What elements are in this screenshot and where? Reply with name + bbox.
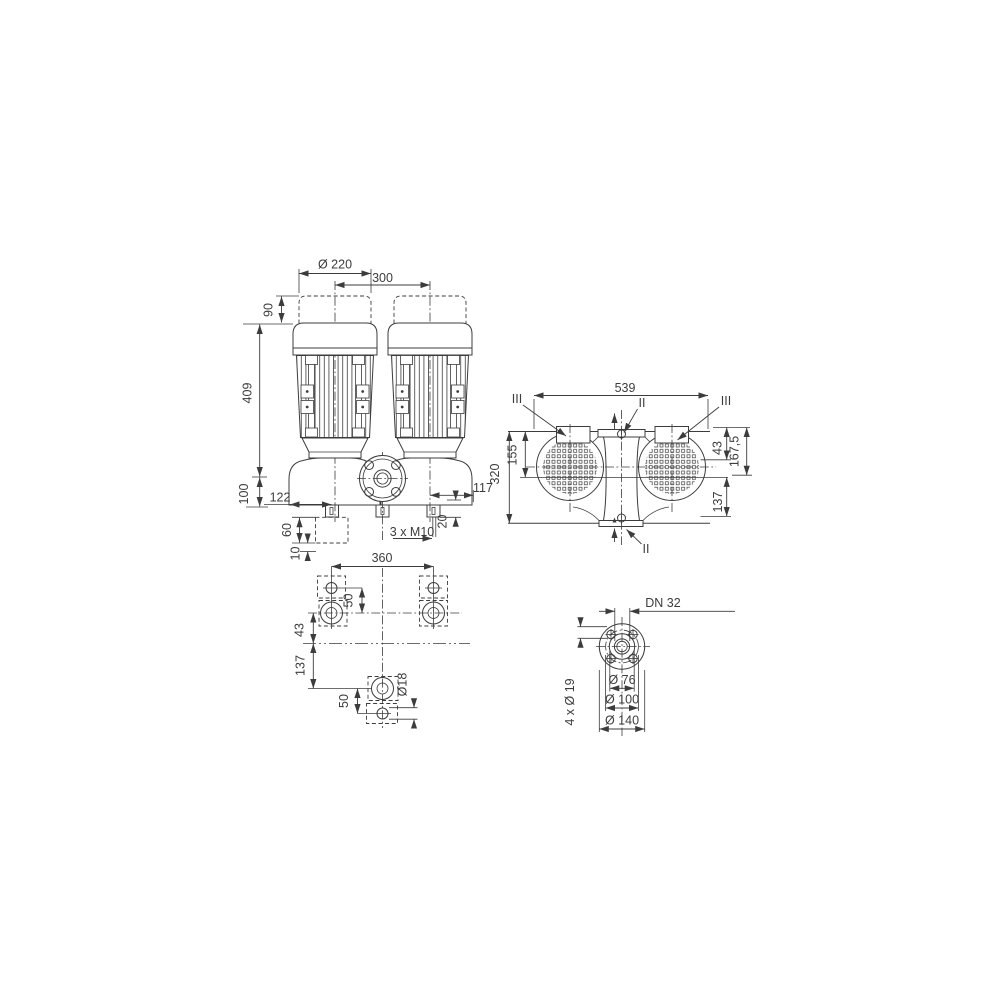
dim-fan-cover-diameter: Ø 220 — [318, 258, 352, 272]
dim-pump-spacing: 300 — [372, 271, 393, 285]
dim-axis-height-100: 100 — [237, 484, 251, 505]
dim-height-409: 409 — [241, 383, 255, 404]
pipe-body — [604, 437, 607, 521]
plan-view: III III II II 539 320 155 43 167,5 — [488, 381, 752, 556]
dim-offset-50-bottom: 50 — [337, 694, 351, 708]
dim-clearance-90: 90 — [262, 303, 276, 317]
plan-view-dimensions: 539 320 155 43 167,5 137 — [488, 381, 752, 523]
section-marker-II-bottom: II — [643, 542, 650, 556]
pump-foot — [326, 505, 339, 517]
flange-outer-circle — [599, 624, 644, 669]
foundation-dimensions: 360 50 43 137 50 Ø18 — [293, 551, 434, 727]
dim-span-360: 360 — [372, 551, 393, 565]
foundation-block — [316, 517, 349, 543]
terminal-box-left — [557, 427, 591, 444]
dim-bolt-circle-100: Ø 100 — [605, 693, 639, 707]
dim-outer-140: Ø 140 — [605, 714, 639, 728]
technical-drawing-page: Ø 220 300 90 409 100 122 117 20 — [0, 0, 1000, 1000]
pump-dimension-drawing: Ø 220 300 90 409 100 122 117 20 — [0, 0, 1000, 1000]
flange-outer — [360, 456, 406, 502]
dim-bolt-holes-4x19: 4 x Ø 19 — [563, 678, 577, 725]
dim-offset-50-top: 50 — [342, 594, 356, 608]
dim-axis-155: 155 — [506, 445, 520, 466]
section-marker-III-right: III — [721, 394, 731, 408]
dim-43: 43 — [711, 441, 725, 455]
section-marker-II-top: II — [639, 396, 646, 410]
dim-foot-step-20: 20 — [436, 515, 450, 529]
flange-detail-view: DN 32 4 x Ø 19 Ø 76 Ø 100 Ø 140 — [563, 596, 735, 736]
dim-foot-122: 122 — [270, 491, 291, 505]
dim-length-539: 539 — [615, 381, 636, 395]
section-marker-III-left: III — [512, 392, 522, 406]
dim-43-foundation: 43 — [293, 623, 307, 637]
front-elevation-view: Ø 220 300 90 409 100 122 117 20 — [237, 258, 493, 561]
pipe-body — [637, 437, 640, 521]
foundation-plan-view: 360 50 43 137 50 Ø18 — [293, 551, 471, 728]
dim-137-foundation: 137 — [294, 655, 308, 676]
label-tapped-holes-m10: 3 x M10 — [390, 525, 435, 539]
dim-137: 137 — [711, 492, 725, 513]
dim-face-76: Ø 76 — [608, 673, 635, 687]
dim-width-320: 320 — [488, 464, 502, 485]
dim-dn32: DN 32 — [645, 596, 680, 610]
flange-dimensions: DN 32 4 x Ø 19 Ø 76 Ø 100 Ø 140 — [563, 596, 735, 732]
dim-167-5: 167,5 — [728, 436, 742, 467]
dim-grout-10: 10 — [289, 547, 303, 561]
dim-hole-dia-18: Ø18 — [396, 673, 410, 697]
dim-block-60: 60 — [280, 523, 294, 537]
bottom-port-flange — [599, 521, 643, 527]
